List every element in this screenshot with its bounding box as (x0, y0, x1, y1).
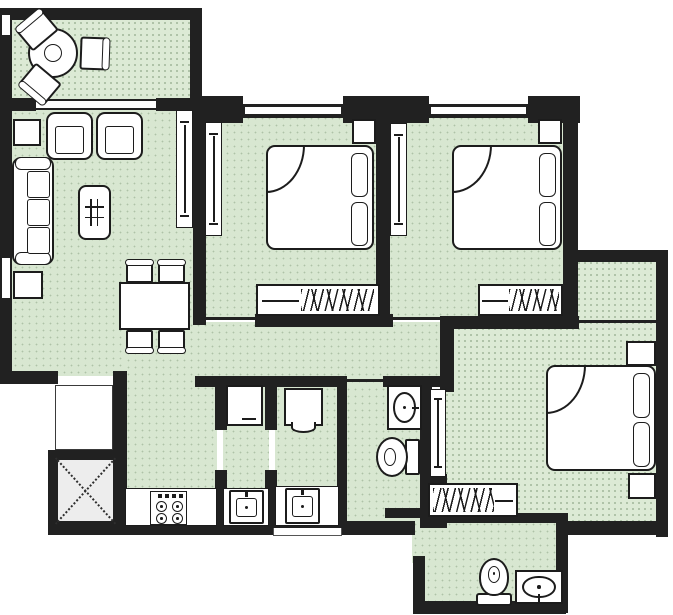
wardrobe-rail (482, 300, 507, 302)
dining-chair-2 (158, 263, 185, 283)
washing-machine (226, 385, 263, 426)
wall (385, 508, 432, 518)
grid-line (90, 199, 92, 226)
wall (0, 110, 12, 258)
bed-1 (266, 145, 374, 250)
armchair-seat (105, 126, 134, 154)
grid-line (85, 217, 105, 219)
side-table-2 (13, 271, 43, 299)
burner-center (176, 505, 179, 508)
bed-pillow (539, 153, 556, 197)
wc-bowl (376, 437, 408, 477)
burner-center (160, 517, 163, 520)
bed-pillow (633, 422, 650, 467)
stove-knob (172, 494, 176, 499)
bed-2 (452, 145, 562, 250)
sofa-cushion (27, 227, 50, 254)
bed-fold-line (452, 145, 492, 193)
armchair-2 (96, 112, 143, 160)
panel-handle (437, 400, 439, 465)
wall (0, 8, 12, 15)
dining-chair-1 (126, 263, 153, 283)
faucet (412, 407, 419, 409)
attached-bath-washbasin (515, 570, 563, 604)
drain (493, 572, 496, 575)
box-flap (291, 422, 316, 433)
burner-center (160, 505, 163, 508)
burner (172, 501, 183, 512)
panel-cap (394, 223, 402, 225)
utility-a-sink (229, 490, 264, 524)
stove-knob (158, 494, 162, 499)
bedroom-1-window (245, 105, 341, 116)
bedroom-1-door-opening (203, 317, 255, 320)
hanging-clothes-hatch (301, 289, 374, 311)
balcony-side-window (0, 15, 12, 35)
bedroom-2-door-opening (393, 317, 443, 320)
stove-knob (179, 494, 183, 499)
box-slot (242, 418, 256, 421)
dining-chair-3 (126, 330, 153, 350)
panel-handle (398, 137, 400, 221)
panel-cap (394, 134, 402, 136)
burner (156, 501, 167, 512)
wall (0, 298, 12, 378)
balcony-living-window (36, 99, 156, 110)
chair-back (157, 347, 186, 354)
bedroom-3-sliding-door (430, 389, 446, 477)
water-heater (284, 388, 323, 426)
drain (537, 585, 541, 589)
armchair-seat (55, 126, 84, 154)
wardrobe-2 (478, 284, 563, 316)
panel-cap (180, 121, 188, 123)
dining-chair-4 (158, 330, 185, 350)
panel-cap (434, 466, 442, 468)
grid-line (97, 199, 99, 226)
chair-back (125, 347, 154, 354)
common-bath-toilet (376, 437, 420, 477)
wall (0, 35, 12, 110)
nightstand-3a (626, 341, 656, 366)
wall (12, 98, 36, 111)
bed-fold-line (266, 145, 305, 193)
bed-3 (546, 365, 656, 471)
wall (565, 250, 668, 262)
sofa-cushion (27, 171, 50, 198)
hanging-clothes-hatch (433, 488, 494, 512)
bed-pillow (351, 153, 368, 197)
armchair-1 (46, 112, 93, 160)
bedroom-1-sliding-door (205, 122, 222, 236)
wall (265, 376, 277, 430)
common-bath-washbasin (387, 385, 422, 430)
nightstand-2 (538, 119, 562, 144)
panel-handle (213, 136, 215, 221)
faucet (245, 491, 248, 497)
stove-knob (165, 494, 169, 499)
nightstand-1 (352, 119, 376, 144)
panel-cap (180, 215, 188, 217)
attached-bath-toilet (476, 558, 512, 606)
burner-center (176, 517, 179, 520)
wardrobe-3 (428, 483, 518, 517)
wall (342, 521, 415, 535)
faucet (301, 489, 304, 495)
burner (172, 513, 183, 524)
bedroom-2-window (431, 105, 526, 116)
wall (0, 371, 58, 384)
panel-cap (434, 398, 442, 400)
side-table-1 (13, 119, 41, 146)
dining-table (119, 282, 190, 330)
faucet (538, 594, 540, 602)
wall (190, 8, 202, 108)
grid-line (85, 206, 105, 208)
sofa-cushion (27, 199, 50, 226)
coffee-table (78, 185, 111, 240)
wall (656, 250, 668, 537)
shaft-duct-mark (56, 458, 116, 524)
corridor-opening (345, 379, 383, 382)
table-center (44, 44, 62, 62)
nightstand-3b (628, 473, 656, 499)
chair-back (101, 37, 110, 70)
sofa (12, 157, 54, 265)
service-duct (55, 385, 113, 450)
balcony-chair-2 (79, 37, 108, 71)
bedroom-3-ext-sill (578, 320, 656, 323)
living-room-window (0, 258, 12, 298)
living-wall-cabinet (176, 110, 193, 228)
wardrobe-rail (495, 500, 513, 502)
panel-cap (209, 133, 217, 135)
panel-cap (209, 223, 217, 225)
chair-back (157, 259, 186, 266)
wall (556, 521, 668, 535)
wardrobe-rail (262, 300, 299, 302)
wall (413, 556, 425, 606)
wall (565, 258, 578, 324)
bed-fold-line (546, 365, 586, 414)
floor-plan (0, 0, 673, 615)
entrance-step (273, 528, 342, 536)
bedroom-2-sliding-door (390, 123, 407, 236)
wardrobe-1 (256, 284, 380, 316)
hanging-clothes-hatch (509, 289, 558, 311)
gas-stove (150, 491, 187, 525)
bed-pillow (539, 202, 556, 246)
panel-handle (184, 125, 186, 213)
bed-pillow (633, 373, 650, 418)
wc-bowl-inner (384, 448, 396, 465)
bed-pillow (351, 202, 368, 246)
sofa-armrest (15, 157, 51, 170)
wc-bowl (479, 558, 509, 596)
wall (195, 96, 243, 123)
chair-back (125, 259, 154, 266)
burner (156, 513, 167, 524)
utility-b-sink (285, 488, 320, 524)
wall (443, 316, 579, 329)
